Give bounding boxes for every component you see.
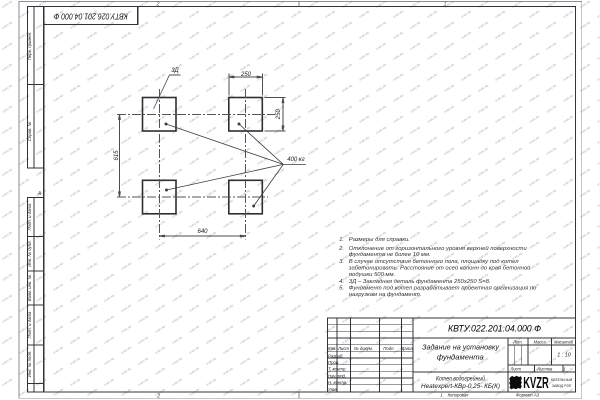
svg-text:3Д – Закладная деталь фундамен: 3Д – Закладная деталь фундамента 250x250… <box>349 279 491 285</box>
svg-text:Подп. и дата: Подп. и дата <box>27 311 32 339</box>
svg-text:КВТУ.022.201.04.000 Ф: КВТУ.022.201.04.000 Ф <box>448 324 541 334</box>
svg-text:Подп. и дата: Подп. и дата <box>27 203 32 231</box>
svg-text:Масса: Масса <box>534 339 547 344</box>
svg-text:Размеры для справки.: Размеры для справки. <box>349 237 410 243</box>
svg-text:1 : 10: 1 : 10 <box>557 352 571 358</box>
svg-text:400 кг: 400 кг <box>287 157 305 163</box>
svg-text:Фундамент под котел разрабатыв: Фундамент под котел разрабатывает проект… <box>349 286 537 292</box>
svg-text:3Д: 3Д <box>171 68 179 74</box>
svg-text:Лист: Лист <box>509 367 521 372</box>
svg-text:Инв. № дубл.: Инв. № дубл. <box>27 240 32 266</box>
svg-text:2: 2 <box>156 2 160 8</box>
svg-text:фундамента: фундамента <box>437 353 484 362</box>
svg-text:KVZR: KVZR <box>523 375 549 392</box>
svg-text:Пров.: Пров. <box>328 360 339 365</box>
svg-text:1: 1 <box>444 2 447 8</box>
svg-text:забетонировать. Расстояние от: забетонировать. Расстояние от осей колон… <box>348 265 531 272</box>
svg-text:Утв.: Утв. <box>328 387 338 392</box>
svg-text:2.: 2. <box>338 246 344 252</box>
svg-text:Отклонение от горизонтального: Отклонение от горизонтального уровня вер… <box>349 245 528 252</box>
svg-text:Инв. № подл.: Инв. № подл. <box>27 351 32 378</box>
svg-text:5.: 5. <box>339 286 344 292</box>
svg-text:нагрузкам на фундамент.: нагрузкам на фундамент. <box>349 292 422 298</box>
svg-text:Н. контр.: Н. контр. <box>328 380 347 385</box>
svg-text:Heatexpert-КВр-0,25- КБ(К): Heatexpert-КВр-0,25- КБ(К) <box>421 384 500 390</box>
svg-text:Формат А3: Формат А3 <box>516 393 540 398</box>
svg-text:Подп.: Подп. <box>383 346 394 351</box>
svg-text:250: 250 <box>240 72 252 78</box>
svg-text:Листов: Листов <box>536 367 553 372</box>
svg-text:4.: 4. <box>339 279 344 285</box>
svg-text:Дата: Дата <box>400 346 413 351</box>
svg-text:Взам. инв. №: Взам. инв. № <box>27 274 32 301</box>
svg-text:Т. контр.: Т. контр. <box>328 367 347 372</box>
svg-text:1.: 1. <box>339 237 344 243</box>
svg-text:Справ. №: Справ. № <box>27 121 32 141</box>
svg-text:Нач.отд.: Нач.отд. <box>328 373 346 378</box>
svg-text:ЗАВОД РЭП: ЗАВОД РЭП <box>552 384 572 388</box>
svg-text:Задание на установку: Задание на установку <box>422 343 500 352</box>
svg-text:1: 1 <box>563 367 565 372</box>
svg-text:640: 640 <box>197 229 208 235</box>
svg-text:фундамента не более 10 мм.: фундамента не более 10 мм. <box>349 252 431 258</box>
svg-text:Лист: Лист <box>337 346 349 351</box>
svg-text:3.: 3. <box>339 259 344 265</box>
svg-text:№ докум.: № докум. <box>354 346 373 351</box>
svg-text:1: 1 <box>440 393 442 398</box>
svg-text:2: 2 <box>156 394 160 400</box>
svg-text:КВТУ.026.201.04.000 Ф: КВТУ.026.201.04.000 Ф <box>53 11 128 20</box>
svg-text:В случае отсутствия бетонного: В случае отсутствия бетонного пола, площ… <box>349 259 519 265</box>
svg-text:Копировал: Копировал <box>448 393 469 398</box>
svg-text:Масштаб: Масштаб <box>554 339 574 344</box>
svg-text:подушки 500 мм.: подушки 500 мм. <box>349 272 395 278</box>
svg-text:Разраб.: Разраб. <box>328 353 344 358</box>
svg-text:КОТЕЛЬНЫЙ: КОТЕЛЬНЫЙ <box>551 378 573 382</box>
svg-text:Изм.: Изм. <box>327 346 336 351</box>
svg-text:Перв. примен.: Перв. примен. <box>27 32 32 61</box>
svg-text:Котел водогрейный: Котел водогрейный <box>436 376 486 383</box>
svg-text:615: 615 <box>114 150 120 161</box>
svg-text:250: 250 <box>276 109 282 121</box>
svg-text:А: А <box>37 191 42 197</box>
svg-text:Лит.: Лит. <box>512 339 523 344</box>
